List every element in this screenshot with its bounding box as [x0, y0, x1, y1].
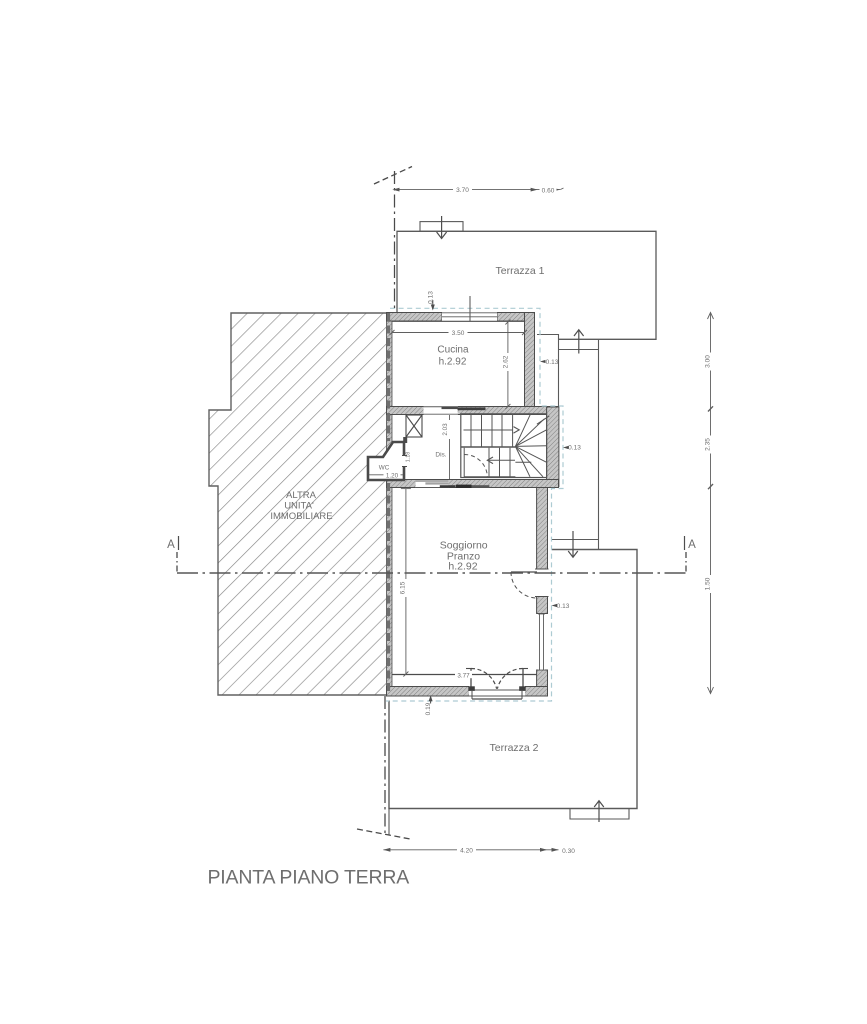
svg-text:0.13: 0.13 — [546, 359, 559, 366]
svg-text:Dis.: Dis. — [435, 451, 446, 458]
svg-text:Cucina: Cucina — [437, 344, 469, 355]
svg-text:6.15: 6.15 — [400, 581, 407, 594]
svg-text:3.70: 3.70 — [456, 187, 469, 194]
svg-text:2.62: 2.62 — [503, 355, 510, 368]
svg-text:1.20: 1.20 — [386, 472, 399, 479]
svg-text:ALTRA: ALTRA — [286, 490, 317, 501]
svg-text:PIANTA PIANO TERRA: PIANTA PIANO TERRA — [208, 867, 410, 889]
svg-text:A: A — [167, 539, 175, 551]
svg-text:h.2.92: h.2.92 — [448, 561, 477, 573]
svg-text:1.18: 1.18 — [406, 452, 412, 463]
svg-text:Terrazza 1: Terrazza 1 — [495, 265, 544, 277]
svg-text:0.60: 0.60 — [542, 188, 555, 195]
svg-text:h.2.92: h.2.92 — [439, 356, 467, 367]
svg-text:2.03: 2.03 — [442, 423, 449, 436]
svg-text:IMMOBILIARE: IMMOBILIARE — [270, 511, 332, 522]
svg-text:0.30: 0.30 — [562, 848, 575, 855]
svg-text:3.50: 3.50 — [452, 330, 465, 337]
svg-text:0.13: 0.13 — [428, 291, 435, 304]
svg-text:3.77: 3.77 — [457, 672, 470, 679]
svg-text:4.20: 4.20 — [460, 848, 473, 855]
svg-text:A: A — [688, 539, 696, 551]
svg-text:0.19: 0.19 — [425, 702, 432, 715]
svg-text:Terrazza 2: Terrazza 2 — [489, 742, 538, 754]
svg-text:0.13: 0.13 — [557, 603, 570, 610]
svg-text:2.35: 2.35 — [704, 438, 711, 451]
svg-text:WC: WC — [379, 464, 390, 471]
svg-text:1.50: 1.50 — [704, 577, 711, 590]
svg-text:0.13: 0.13 — [568, 445, 581, 452]
svg-text:3.00: 3.00 — [704, 355, 711, 368]
svg-text:UNITA': UNITA' — [284, 501, 314, 512]
